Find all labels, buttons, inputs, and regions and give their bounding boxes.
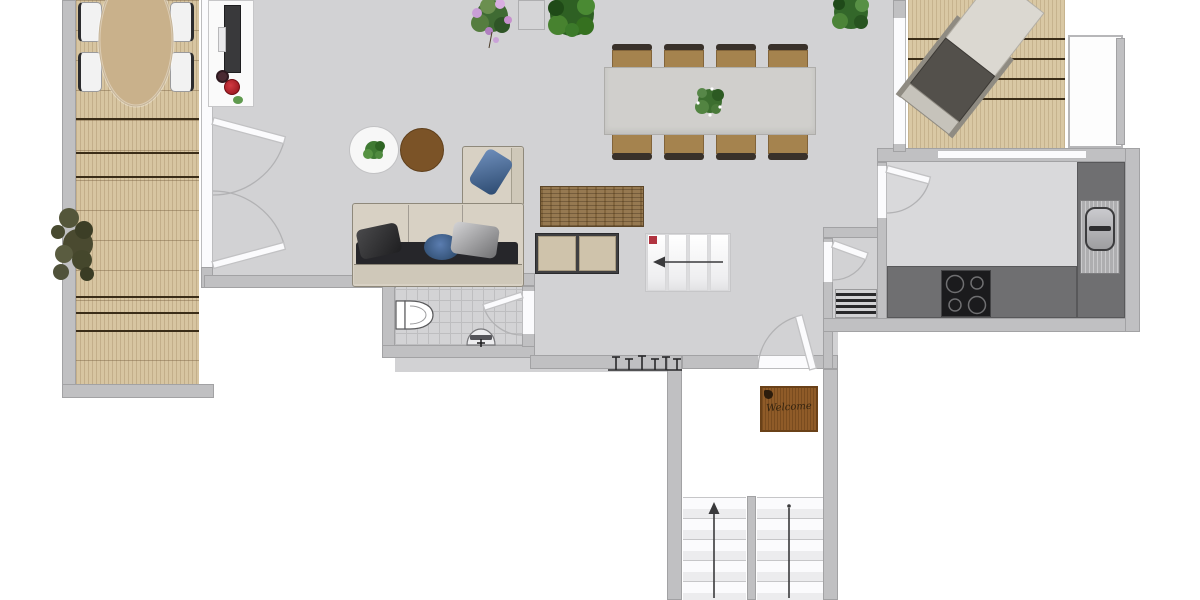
remote-control xyxy=(218,27,226,52)
coffee-table-white xyxy=(349,126,399,174)
sink-faucet xyxy=(1089,226,1111,231)
stairwell-divider xyxy=(747,496,756,600)
vestibule-door-opening xyxy=(823,242,833,282)
deck-plank-line xyxy=(76,118,199,120)
green-ornament xyxy=(233,96,243,104)
bathroom-tiled-floor xyxy=(395,286,522,345)
stairwell-flight-right xyxy=(757,497,823,600)
dining-chair xyxy=(768,133,808,154)
deck-plank-line xyxy=(76,176,199,178)
terrace-bottom-wall xyxy=(62,384,214,398)
stair-tread xyxy=(710,234,729,291)
stairs-red-marker xyxy=(649,236,657,244)
red-bowl xyxy=(224,79,240,95)
sofa-back-cushions xyxy=(354,264,522,284)
bathroom-left-wall xyxy=(382,286,395,347)
pillar xyxy=(518,0,545,30)
balcony-nook xyxy=(1068,35,1123,148)
kitchen-window xyxy=(938,150,1086,159)
dining-chair-back xyxy=(716,153,756,160)
dining-chair-back xyxy=(664,153,704,160)
welcome-mat-text: Welcome xyxy=(762,401,817,415)
dining-chair-back xyxy=(612,153,652,160)
tv-flat xyxy=(224,5,241,73)
cooktop xyxy=(941,270,991,317)
dining-chair xyxy=(612,133,652,154)
balcony-right-wall xyxy=(1116,38,1125,145)
right-glass-window xyxy=(893,18,906,144)
kitchen-bottom-wall xyxy=(823,318,1140,332)
deck-plank-line xyxy=(76,296,199,298)
bathroom-bottom-wall xyxy=(382,345,535,358)
coffee-table-brown xyxy=(400,128,444,172)
stair-tread xyxy=(668,234,687,291)
stair-tread xyxy=(689,234,708,291)
bathroom-door-opening xyxy=(522,291,535,334)
radiator-grate xyxy=(835,289,877,318)
terrace-left-wall xyxy=(62,0,76,398)
hall-bottom-wall xyxy=(530,355,682,369)
vestibule-top-wall xyxy=(823,227,885,238)
stairwell-left-wall xyxy=(667,355,682,600)
cabinet-door xyxy=(579,236,616,271)
sofa-chaise-back xyxy=(511,148,523,206)
deck-plank-line xyxy=(76,152,199,154)
stairwell-right-wall xyxy=(823,369,838,600)
deck-plank-line xyxy=(908,78,1065,80)
entry-door-opening xyxy=(758,355,813,369)
terrace-chair xyxy=(78,2,102,42)
welcome-mat-emblem xyxy=(764,390,773,399)
cabinet-door xyxy=(538,236,576,271)
wall-above-right-window xyxy=(893,0,906,20)
kitchen-right-wall xyxy=(1125,148,1140,332)
terrace-right-deck xyxy=(908,0,1065,148)
stairwell-flight-left xyxy=(683,497,746,600)
kitchen-door-opening xyxy=(877,166,887,218)
entry-wall-left-of-door xyxy=(682,355,760,369)
deck-plank-line xyxy=(908,38,1065,40)
dining-table xyxy=(604,67,816,135)
deck-plank-line xyxy=(76,312,199,314)
terrace-chair xyxy=(78,52,102,92)
deck-plank-line xyxy=(908,58,1065,60)
terrace-chair xyxy=(170,52,194,92)
wood-lowboard xyxy=(540,186,644,227)
deck-plank-line xyxy=(76,330,199,332)
floor-plan: Welcome xyxy=(0,0,1200,600)
dining-chair xyxy=(664,133,704,154)
dining-chair xyxy=(716,133,756,154)
terrace-chair xyxy=(170,2,194,42)
dining-chair-back xyxy=(768,153,808,160)
pillow-gray xyxy=(450,221,500,259)
deck-plank-line xyxy=(908,98,1065,100)
